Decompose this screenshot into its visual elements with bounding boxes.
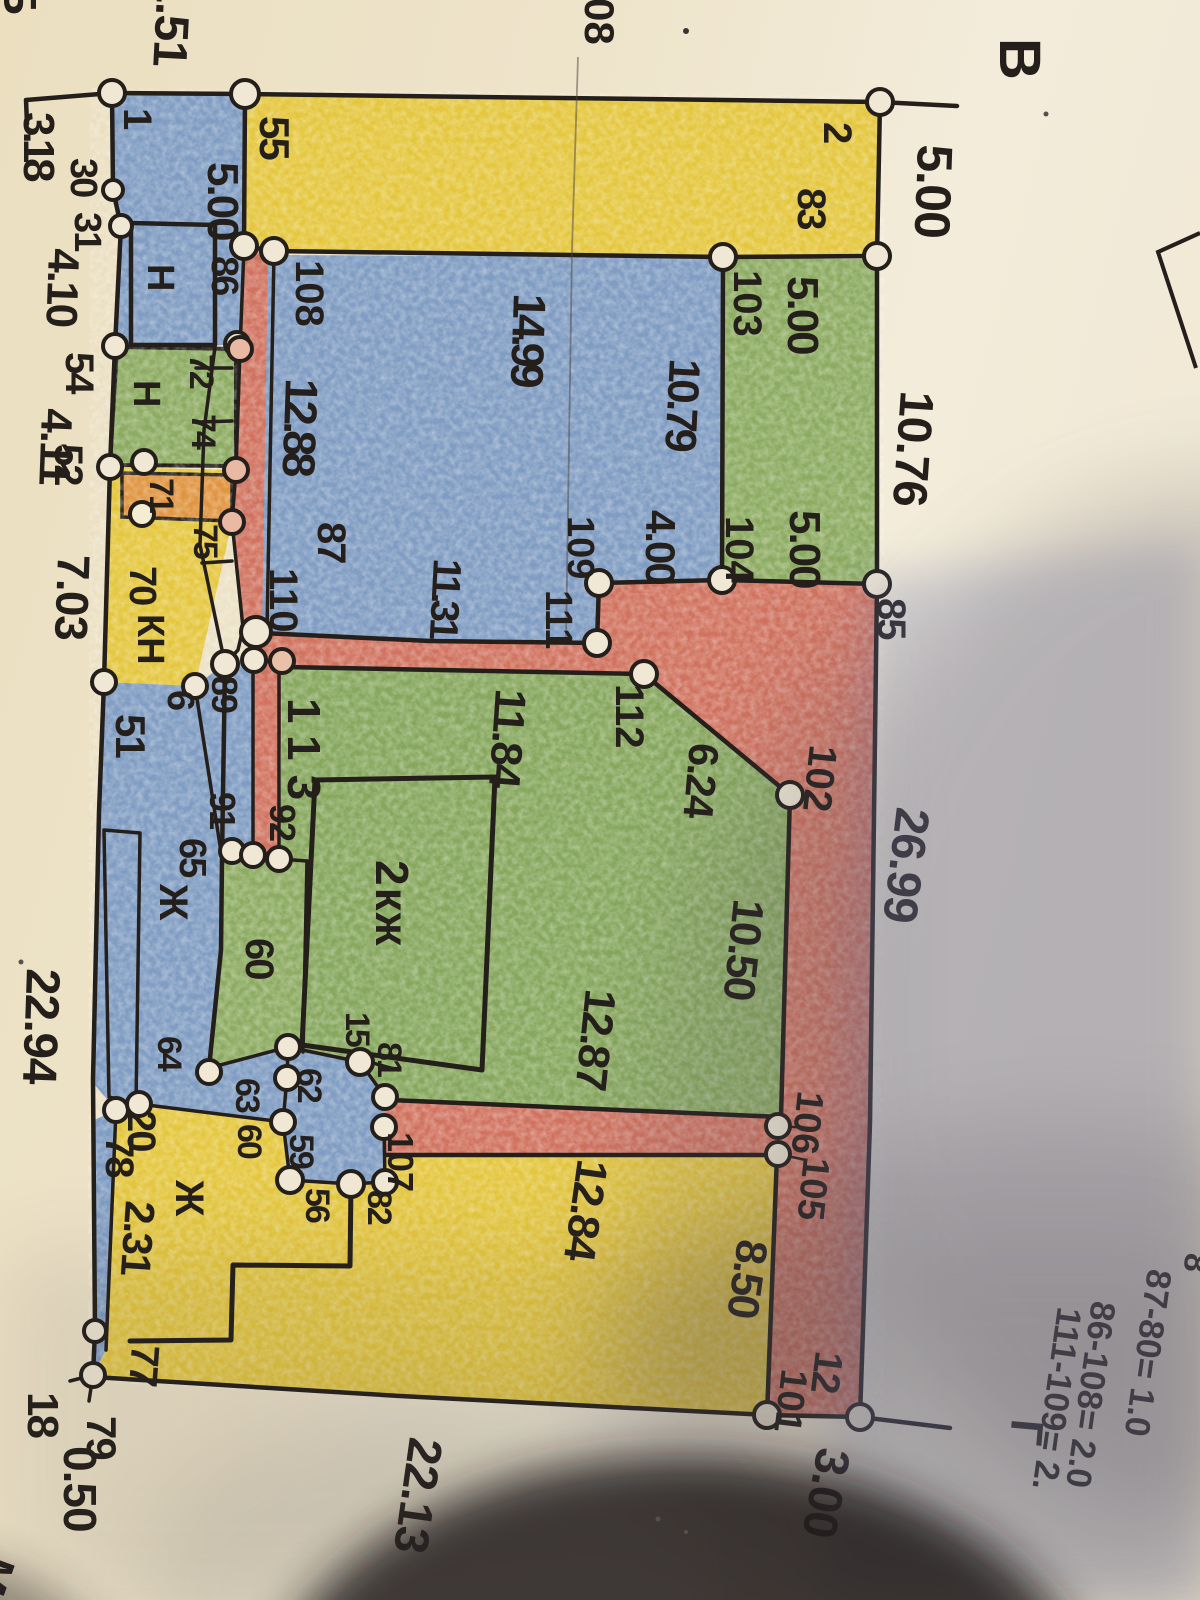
svg-text:Н: Н	[125, 380, 167, 407]
svg-text:107: 107	[380, 1132, 421, 1192]
svg-text:109: 109	[559, 516, 601, 579]
svg-text:В: В	[987, 38, 1052, 80]
svg-text:12.87: 12.87	[566, 987, 625, 1092]
svg-text:59: 59	[282, 1134, 320, 1169]
svg-text:10.79: 10.79	[655, 357, 709, 452]
svg-text:5.00: 5.00	[904, 144, 963, 239]
svg-text:31: 31	[66, 212, 108, 252]
svg-text:1: 1	[115, 108, 159, 130]
svg-text:11.31: 11.31	[421, 558, 469, 642]
svg-text:1.51: 1.51	[142, 0, 200, 68]
svg-text:86: 86	[203, 256, 245, 295]
svg-text:87: 87	[309, 522, 353, 563]
svg-text:2: 2	[815, 122, 859, 144]
svg-text:110: 110	[261, 568, 305, 633]
svg-text:52: 52	[46, 444, 90, 485]
svg-text:5.00: 5.00	[780, 510, 829, 588]
svg-text:72: 72	[182, 354, 220, 389]
svg-text:5.00: 5.00	[778, 276, 827, 354]
svg-text:78: 78	[97, 1136, 141, 1178]
svg-text:113: 113	[278, 698, 330, 814]
svg-text:Б: Б	[0, 0, 46, 15]
svg-text:12.88: 12.88	[273, 378, 328, 478]
svg-text:103: 103	[725, 270, 769, 337]
svg-text:КН: КН	[129, 614, 171, 665]
svg-text:7.03: 7.03	[45, 554, 100, 641]
svg-text:51: 51	[107, 714, 154, 758]
svg-text:81: 81	[370, 1042, 408, 1077]
svg-text:55: 55	[251, 116, 298, 160]
svg-text:108: 108	[287, 260, 331, 327]
svg-text:Н: Н	[139, 264, 181, 291]
svg-text:82: 82	[360, 1190, 398, 1225]
svg-text:5.00: 5.00	[198, 162, 247, 240]
svg-text:22.94: 22.94	[12, 968, 69, 1086]
svg-text:71: 71	[142, 478, 180, 513]
svg-text:89: 89	[204, 676, 245, 713]
svg-text:30: 30	[62, 158, 104, 197]
svg-text:08: 08	[576, 0, 623, 45]
svg-text:111: 111	[537, 590, 579, 649]
svg-text:60: 60	[230, 1124, 268, 1159]
svg-text:2кж: 2кж	[366, 860, 418, 947]
svg-text:91: 91	[202, 792, 243, 830]
svg-text:74: 74	[184, 414, 222, 450]
svg-text:3.18: 3.18	[14, 112, 63, 182]
svg-text:104: 104	[717, 516, 761, 583]
svg-text:6.24: 6.24	[674, 741, 727, 821]
svg-text:11.84: 11.84	[479, 687, 535, 790]
svg-text:62: 62	[290, 1068, 328, 1103]
svg-text:6: 6	[159, 690, 201, 711]
svg-text:14.99: 14.99	[501, 293, 556, 388]
svg-text:Ж: Ж	[151, 883, 195, 921]
svg-text:60: 60	[237, 938, 281, 979]
svg-text:64: 64	[150, 1036, 188, 1072]
svg-text:4.10: 4.10	[36, 248, 88, 328]
svg-text:63: 63	[228, 1078, 266, 1113]
svg-text:4.00: 4.00	[637, 510, 684, 584]
svg-text:92: 92	[262, 804, 303, 841]
svg-text:70: 70	[121, 566, 163, 605]
svg-text:112: 112	[607, 684, 651, 749]
svg-text:Ж: Ж	[167, 1179, 211, 1217]
svg-text:54: 54	[57, 352, 101, 395]
svg-text:75: 75	[186, 524, 224, 559]
svg-text:65: 65	[171, 838, 213, 878]
svg-text:83: 83	[789, 188, 833, 229]
svg-text:56: 56	[298, 1188, 336, 1223]
svg-text:10.76: 10.76	[882, 389, 943, 508]
